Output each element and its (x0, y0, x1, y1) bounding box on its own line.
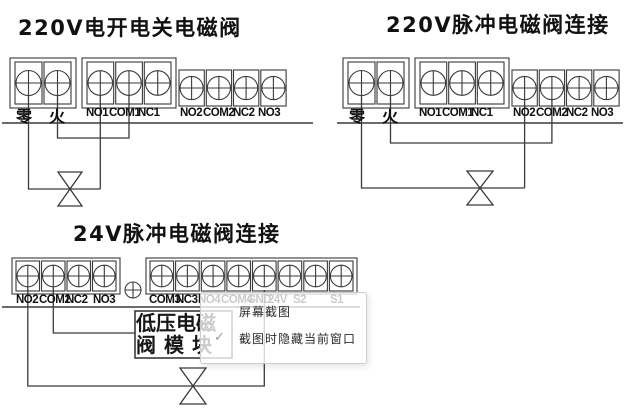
terminal-label: NC2 (66, 294, 88, 306)
terminal-label-neutral: 零 (16, 103, 32, 127)
terminal-label: COM1 (442, 107, 473, 119)
terminal-label: NC2 (233, 107, 255, 119)
terminal-label: NO3 (93, 294, 115, 306)
terminal-label: COM2 (203, 107, 234, 119)
terminal-label: COM2 (536, 107, 567, 119)
terminal-label: NO3 (258, 107, 280, 119)
terminal-label-live: 火 (382, 103, 398, 127)
terminal-label: NC1 (138, 107, 160, 119)
terminal-label: NO3 (591, 107, 613, 119)
wiring-diagram-page: 220V电开电关电磁阀 220V脉冲电磁阀连接 24V脉冲电磁阀连接 零 火 N… (0, 0, 625, 409)
terminal-label-neutral: 零 (349, 103, 365, 127)
terminal-label: NC1 (471, 107, 493, 119)
terminal-label: NO2 (513, 107, 535, 119)
diagram2-title: 220V脉冲电磁阀连接 (386, 9, 610, 39)
terminal-label: NC2 (566, 107, 588, 119)
diagram3-title: 24V脉冲电磁阀连接 (73, 218, 280, 248)
terminal-label: NO1 (419, 107, 441, 119)
terminal-label: NO2 (180, 107, 202, 119)
terminal-label-live: 火 (49, 103, 65, 127)
screenshot-context-menu: 屏幕截图 ✓ 截图时隐藏当前窗口 (200, 292, 367, 364)
checkmark-icon: ✓ (214, 329, 225, 345)
menu-item-hide-window[interactable]: 截图时隐藏当前窗口 (239, 330, 356, 347)
terminal-label: NO1 (86, 107, 108, 119)
terminal-label: NC3 (176, 294, 198, 306)
menu-item-screenshot[interactable]: 屏幕截图 (239, 303, 291, 320)
terminal-label: NO2 (16, 294, 38, 306)
terminal-label: COM1 (109, 107, 140, 119)
diagram1-title: 220V电开电关电磁阀 (18, 12, 242, 42)
